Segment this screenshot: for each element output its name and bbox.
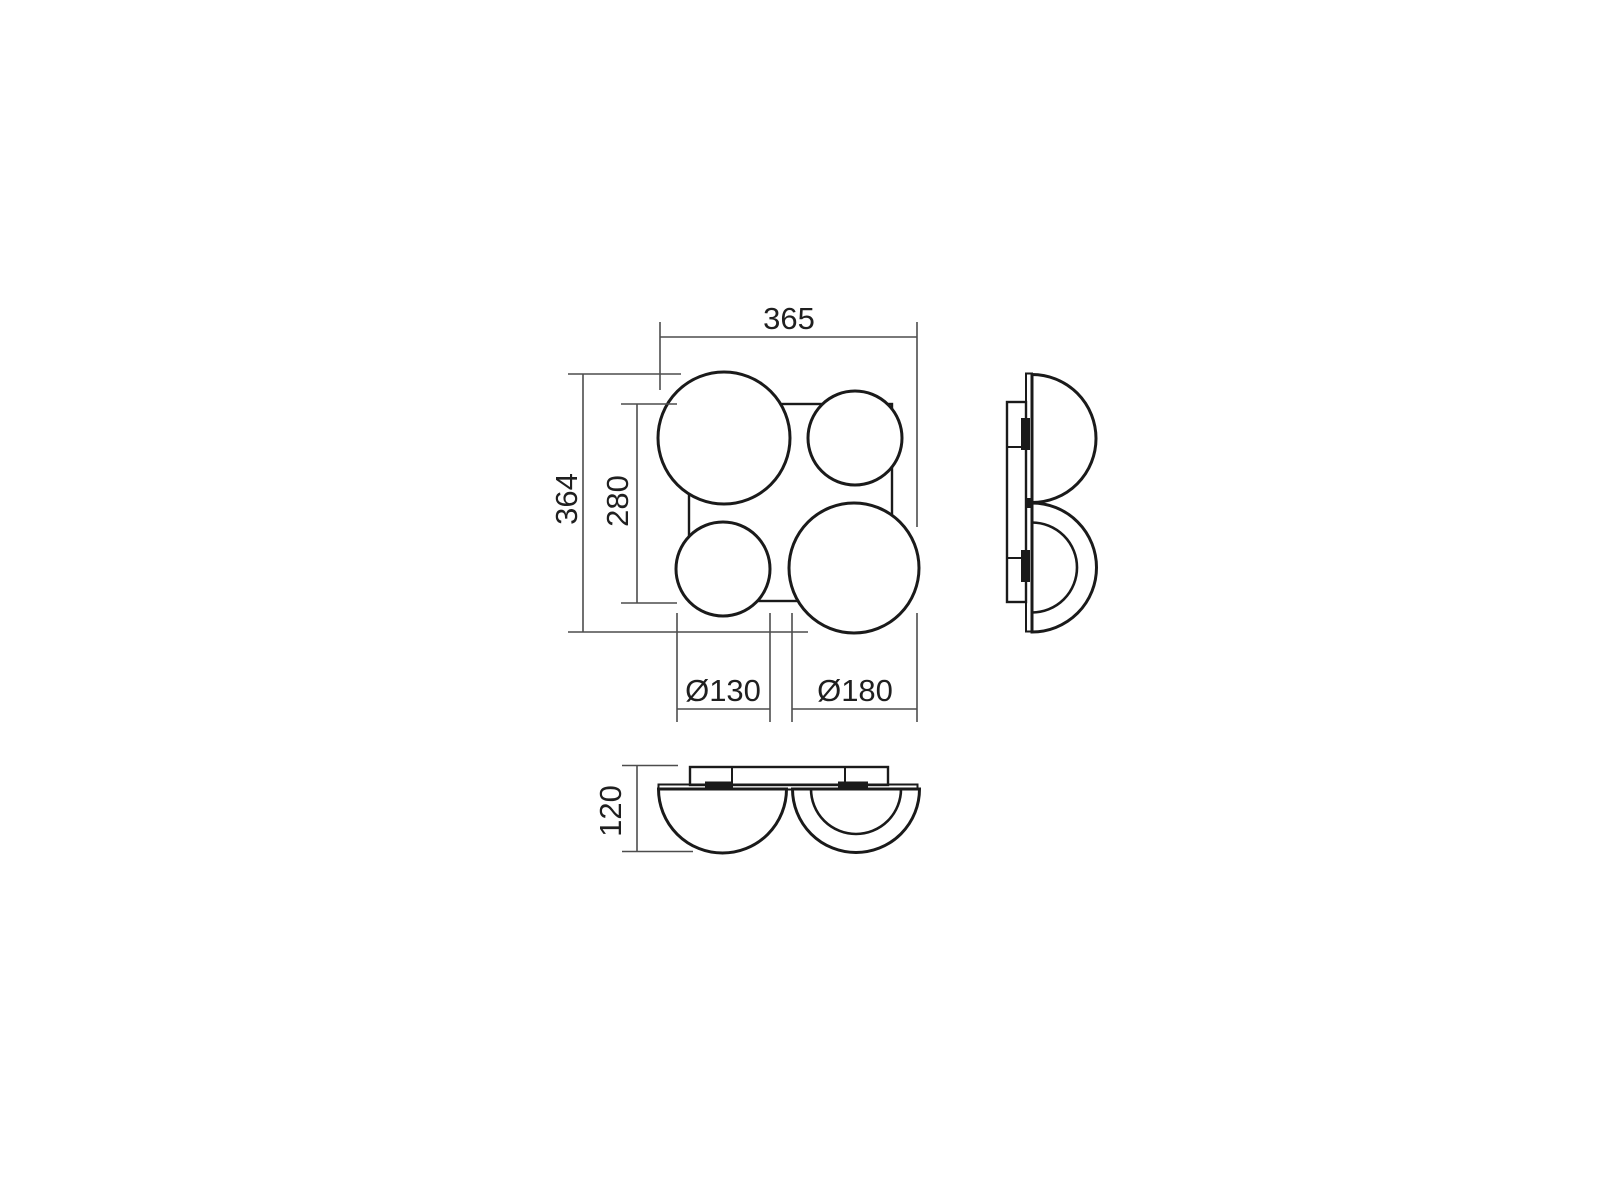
front-view: 365 364 280 Ø130 Ø180	[549, 301, 919, 722]
dim-small-shade-diameter-label: Ø130	[685, 673, 761, 708]
bottom-connector-right	[838, 782, 868, 789]
technical-drawing-canvas: 365 364 280 Ø130 Ø180	[0, 0, 1600, 1200]
side-dome-junction	[1027, 498, 1033, 508]
side-connector-bottom	[1021, 550, 1030, 582]
side-connector-top	[1021, 418, 1030, 450]
side-view	[1007, 374, 1097, 633]
front-shade-large-bottom-right	[789, 503, 919, 633]
front-shade-large-top-left	[658, 372, 790, 504]
front-shade-small-bottom-left	[676, 522, 770, 616]
bottom-connector-left	[705, 782, 733, 789]
dim-overall-height-label: 364	[549, 473, 584, 525]
front-shade-small-top-right	[808, 391, 902, 485]
dim-small-shade-diameter: Ø130	[677, 613, 770, 722]
bottom-view: 120	[593, 766, 920, 854]
bottom-canopy-plate-edge	[659, 785, 918, 790]
dim-overall-width-label: 365	[763, 301, 815, 336]
dim-large-shade-diameter-label: Ø180	[817, 673, 893, 708]
dim-fixture-depth-label: 120	[593, 785, 628, 837]
dim-plate-size-label: 280	[600, 475, 635, 527]
bottom-shade-left-dome	[659, 789, 787, 853]
side-shade-top-dome	[1032, 375, 1096, 503]
